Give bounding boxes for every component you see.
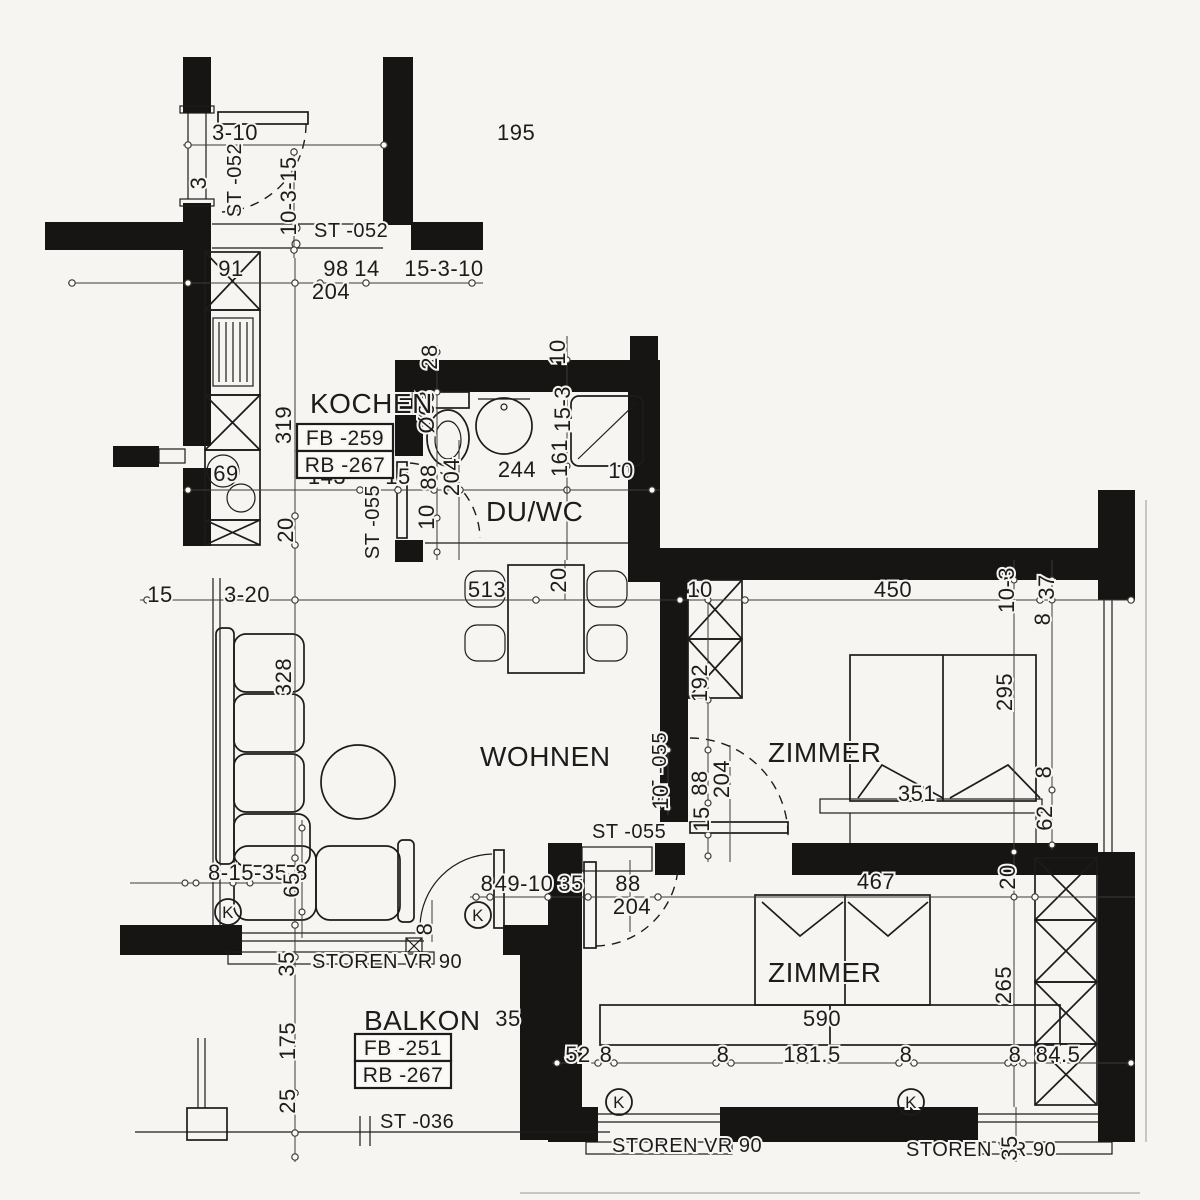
dimension-label: 37 bbox=[1034, 574, 1059, 599]
room-label: ZIMMER bbox=[768, 737, 881, 768]
dimension-label: STOREN VR 90 bbox=[312, 951, 462, 973]
dimension-label: 10 bbox=[545, 339, 570, 364]
dimension-label: 8 bbox=[717, 1042, 730, 1067]
k-symbol: K bbox=[905, 1093, 917, 1112]
dimension-label: 20 bbox=[546, 567, 571, 592]
dimension-label: 265 bbox=[991, 966, 1016, 1004]
dimension-label: ST -055 bbox=[362, 485, 384, 559]
dimension-label: 204 bbox=[439, 458, 464, 496]
dimension-label: 10-3-15 bbox=[276, 156, 301, 235]
level-label: RB -267 bbox=[305, 454, 386, 477]
dimension-label: 192 bbox=[687, 664, 712, 702]
dimension-label: 467 bbox=[857, 869, 895, 894]
dimension-label: 195 bbox=[497, 120, 535, 145]
dimension-label: 204 bbox=[312, 279, 350, 304]
dimension-label: 351 bbox=[898, 781, 936, 806]
dimension-label: 8 bbox=[481, 871, 494, 896]
dimension-label: 204 bbox=[709, 760, 734, 798]
k-symbol: K bbox=[472, 906, 484, 925]
floor-plan-svg: 3-101953ST -05210-3-15ST -05291981415-3-… bbox=[0, 0, 1200, 1200]
room-label: ZIMMER bbox=[768, 957, 881, 988]
dimension-label: 10 bbox=[687, 577, 712, 602]
dimension-label: 319 bbox=[271, 406, 296, 444]
dimension-label: 8 bbox=[900, 1042, 913, 1067]
wardrobe-hatch bbox=[1035, 858, 1097, 1105]
dimension-label: 3-20 bbox=[224, 582, 270, 607]
dimension-label: 295 bbox=[992, 673, 1017, 711]
dimension-label: 8 bbox=[600, 1042, 613, 1067]
dimension-label: 10 bbox=[608, 458, 633, 483]
dimension-label: STOREN VR 90 bbox=[906, 1139, 1056, 1161]
room-label: KOCHEN bbox=[310, 388, 433, 419]
balcony-details bbox=[135, 1038, 1140, 1193]
dimension-label: 590 bbox=[803, 1006, 841, 1031]
coffee-table bbox=[321, 745, 395, 819]
dimension-label: 8 bbox=[1031, 766, 1056, 779]
dimension-label: 161 bbox=[547, 439, 572, 477]
dimension-label: ST -055 bbox=[592, 821, 666, 843]
dimension-label: 15 bbox=[147, 582, 172, 607]
dimension-label: 98 bbox=[323, 256, 348, 281]
k-symbol: K bbox=[222, 903, 234, 922]
dimension-label: 3 bbox=[186, 177, 211, 190]
dimension-label: 175 bbox=[275, 1022, 300, 1060]
dimension-label: STOREN VR 90 bbox=[612, 1135, 762, 1157]
level-label: RB -267 bbox=[363, 1064, 444, 1087]
dimension-label: 35 bbox=[558, 871, 583, 896]
dimension-label: 84.5 bbox=[1036, 1042, 1081, 1067]
dimension-label: 10 bbox=[414, 504, 439, 529]
dimension-label: ST -052 bbox=[314, 220, 388, 242]
dimension-label: 20 bbox=[995, 864, 1020, 889]
dimension-label: ST -036 bbox=[380, 1111, 454, 1133]
dimension-label: 244 bbox=[498, 457, 536, 482]
dimension-label: 15 bbox=[689, 806, 714, 831]
dimension-label: 25 bbox=[275, 1088, 300, 1113]
dimension-label: 450 bbox=[874, 577, 912, 602]
dimension-label: 35 bbox=[495, 1006, 520, 1031]
dimension-label: 8 bbox=[412, 923, 437, 936]
dimension-label: 10-3 bbox=[994, 567, 1019, 613]
dimension-lines bbox=[68, 142, 1135, 1162]
dimension-label: 35 bbox=[274, 951, 299, 976]
level-label: FB -259 bbox=[306, 427, 384, 450]
dimension-label: 15-3 bbox=[550, 386, 575, 432]
level-label: FB -251 bbox=[364, 1037, 442, 1060]
dimension-label: ST -052 bbox=[224, 143, 246, 217]
dimension-label: 91 bbox=[218, 256, 243, 281]
dimension-label: 69 bbox=[213, 461, 238, 486]
dimension-label: 28 bbox=[417, 344, 442, 369]
dimension-label: 49-10 bbox=[495, 871, 554, 896]
dimension-label: 88 bbox=[615, 871, 640, 896]
room-label: DU/WC bbox=[486, 496, 583, 527]
dimension-label: 513 bbox=[468, 577, 506, 602]
dimension-label: 328 bbox=[271, 658, 296, 696]
dimension-label: 62 bbox=[1032, 805, 1057, 830]
k-symbol: K bbox=[613, 1093, 625, 1112]
dimension-label: 20 bbox=[273, 517, 298, 542]
dimension-label: 35 bbox=[997, 1135, 1022, 1160]
dimension-label: 10 bbox=[648, 784, 673, 809]
dimension-label: 15-3-10 bbox=[404, 256, 483, 281]
dimension-label: 181.5 bbox=[783, 1042, 841, 1067]
room-label: WOHNEN bbox=[480, 741, 611, 772]
dimension-label: 204 bbox=[613, 894, 651, 919]
dimension-label: 52 bbox=[565, 1042, 590, 1067]
dimension-label: 8 bbox=[1009, 1042, 1022, 1067]
dimension-label: 88 bbox=[416, 464, 441, 489]
floor-plan-page: 3-101953ST -05210-3-15ST -05291981415-3-… bbox=[0, 0, 1200, 1200]
room-label: BALKON bbox=[364, 1005, 481, 1036]
dimension-label: 14 bbox=[354, 256, 379, 281]
dimension-label: 8 bbox=[1030, 613, 1055, 626]
dimension-label: 65 bbox=[279, 872, 304, 897]
dimension-label: 3-10 bbox=[212, 120, 258, 145]
kitchen-cabinets bbox=[205, 252, 260, 545]
